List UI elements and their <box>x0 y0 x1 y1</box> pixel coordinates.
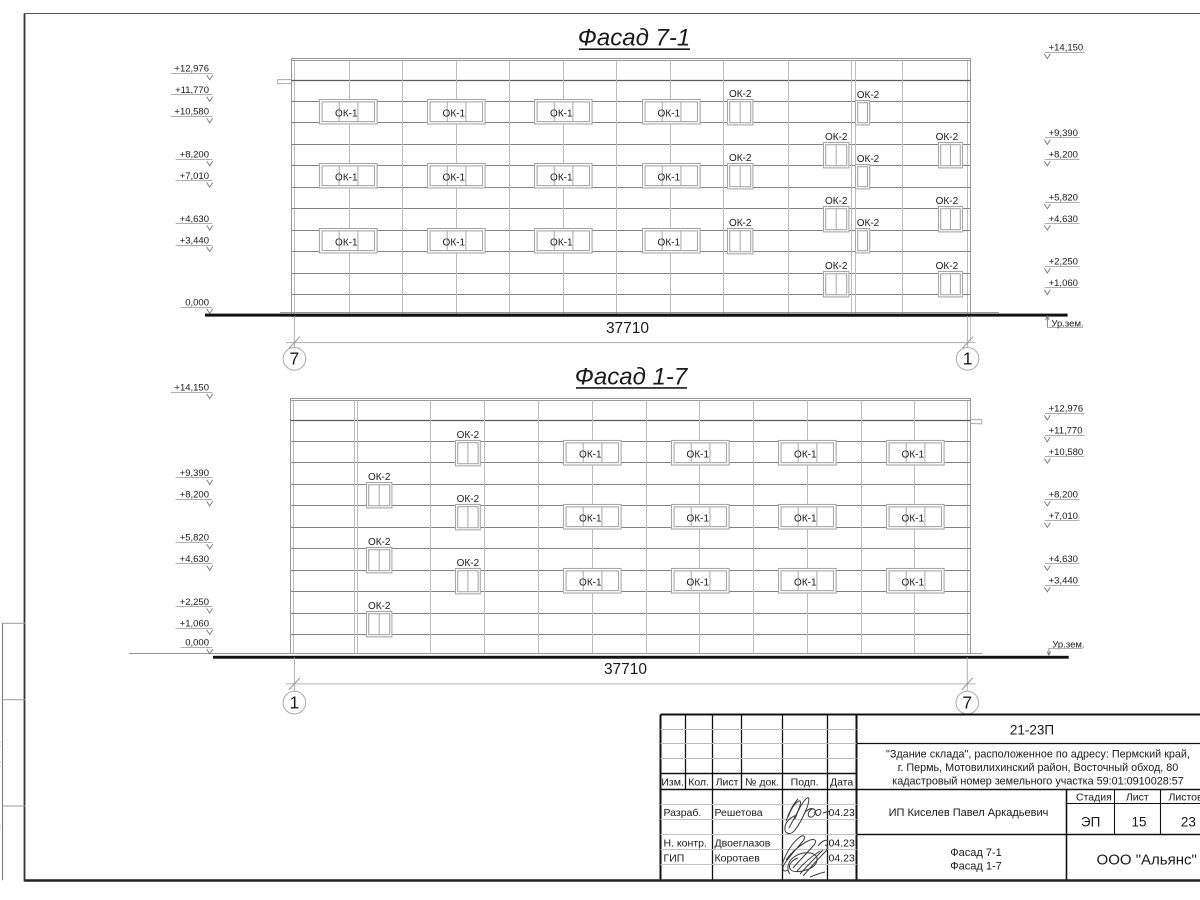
svg-text:Инв. № подл.: Инв. № подл. <box>0 818 1 868</box>
svg-text:+11,770: +11,770 <box>1049 425 1083 436</box>
svg-text:ОК-2: ОК-2 <box>936 261 959 272</box>
svg-text:+3,440: +3,440 <box>1049 576 1078 587</box>
svg-text:№ док.: № док. <box>745 776 779 788</box>
svg-text:04.23: 04.23 <box>829 837 855 849</box>
svg-text:+5,820: +5,820 <box>180 533 209 544</box>
svg-text:Н. контр.: Н. контр. <box>664 837 707 849</box>
svg-text:23: 23 <box>1181 814 1196 829</box>
svg-text:+8,200: +8,200 <box>1049 150 1078 161</box>
svg-text:ОК-1: ОК-1 <box>579 577 602 588</box>
svg-text:+3,440: +3,440 <box>180 235 209 246</box>
svg-text:1: 1 <box>963 349 973 369</box>
svg-text:ОК-2: ОК-2 <box>825 261 848 272</box>
svg-text:+14,150: +14,150 <box>174 382 209 393</box>
svg-text:ОК-1: ОК-1 <box>550 108 573 119</box>
svg-text:ОК-2: ОК-2 <box>936 132 959 143</box>
svg-text:Двоеглазов: Двоеглазов <box>715 837 771 849</box>
svg-text:ОК-2: ОК-2 <box>936 196 959 207</box>
svg-text:+5,820: +5,820 <box>1049 192 1078 203</box>
svg-text:ЭП: ЭП <box>1081 814 1100 829</box>
svg-text:7: 7 <box>290 349 300 369</box>
svg-text:ОК-1: ОК-1 <box>687 513 710 524</box>
svg-text:Ур.зем.: Ур.зем. <box>1051 319 1083 330</box>
svg-text:ОК-2: ОК-2 <box>729 89 752 100</box>
svg-text:Стадия: Стадия <box>1076 791 1112 803</box>
svg-text:ОК-2: ОК-2 <box>857 218 880 229</box>
svg-text:ОК-1: ОК-1 <box>687 449 710 460</box>
svg-text:+8,200: +8,200 <box>1049 490 1078 501</box>
svg-text:37710: 37710 <box>604 661 647 678</box>
svg-text:ОК-2: ОК-2 <box>457 558 480 569</box>
svg-text:Решетова: Решетова <box>715 807 763 819</box>
svg-text:Подп. и дата: Подп. и дата <box>0 729 1 777</box>
svg-text:ОК-1: ОК-1 <box>658 108 681 119</box>
svg-text:Фасад 7-1: Фасад 7-1 <box>578 25 690 52</box>
svg-text:Листов: Листов <box>1168 791 1200 803</box>
svg-text:7: 7 <box>962 692 972 712</box>
svg-text:21-23П: 21-23П <box>1010 722 1054 737</box>
svg-text:ОК-1: ОК-1 <box>579 513 602 524</box>
svg-text:ОК-2: ОК-2 <box>368 537 391 548</box>
svg-text:Фасад 1-7: Фасад 1-7 <box>950 860 1001 872</box>
svg-text:ООО "Альянс": ООО "Альянс" <box>1097 851 1197 868</box>
svg-text:Изм.: Изм. <box>661 776 684 788</box>
svg-text:Лист: Лист <box>716 776 739 788</box>
svg-text:Фасад 7-1: Фасад 7-1 <box>950 847 1001 859</box>
svg-text:Фасад 1-7: Фасад 1-7 <box>575 363 689 390</box>
svg-text:+1,060: +1,060 <box>180 618 209 629</box>
svg-text:ОК-1: ОК-1 <box>550 237 573 248</box>
svg-text:ГИП: ГИП <box>664 852 685 864</box>
svg-text:г. Пермь, Мотовилихинский райо: г. Пермь, Мотовилихинский район, Восточн… <box>898 762 1179 774</box>
svg-text:ОК-1: ОК-1 <box>902 577 925 588</box>
svg-text:ОК-1: ОК-1 <box>902 513 925 524</box>
svg-text:ОК-1: ОК-1 <box>658 237 681 248</box>
svg-text:Дата: Дата <box>830 776 853 788</box>
svg-text:ОК-1: ОК-1 <box>658 172 681 183</box>
svg-text:ОК-2: ОК-2 <box>457 494 480 505</box>
svg-text:04.23: 04.23 <box>829 807 855 819</box>
svg-text:ОК-1: ОК-1 <box>794 513 817 524</box>
svg-text:+8,200: +8,200 <box>180 150 209 161</box>
svg-text:Взам. инв. №: Взам. инв. № <box>0 636 1 686</box>
svg-text:ОК-2: ОК-2 <box>729 153 752 164</box>
svg-text:15: 15 <box>1131 814 1146 829</box>
svg-text:ОК-1: ОК-1 <box>794 577 817 588</box>
svg-text:ОК-2: ОК-2 <box>729 218 752 229</box>
svg-text:1: 1 <box>290 692 300 712</box>
svg-text:ОК-1: ОК-1 <box>687 577 710 588</box>
svg-text:ОК-1: ОК-1 <box>335 108 358 119</box>
svg-text:ОК-2: ОК-2 <box>368 472 391 483</box>
svg-text:ИП Киселев Павел Аркадьевич: ИП Киселев Павел Аркадьевич <box>889 807 1049 819</box>
svg-text:ОК-1: ОК-1 <box>794 449 817 460</box>
svg-text:ОК-1: ОК-1 <box>443 108 466 119</box>
svg-text:+10,580: +10,580 <box>174 107 209 118</box>
svg-text:ОК-1: ОК-1 <box>335 237 358 248</box>
svg-text:ОК-2: ОК-2 <box>825 132 848 143</box>
svg-text:37710: 37710 <box>606 320 649 337</box>
svg-text:ОК-2: ОК-2 <box>857 154 880 165</box>
svg-text:"Здание склада", расположенное: "Здание склада", расположенное по адресу… <box>886 749 1190 761</box>
svg-text:кадастровый номер земельного у: кадастровый номер земельного участка 59:… <box>892 775 1183 787</box>
svg-text:+8,200: +8,200 <box>180 490 209 501</box>
svg-text:+14,150: +14,150 <box>1049 42 1084 53</box>
svg-text:ОК-2: ОК-2 <box>857 90 880 101</box>
svg-text:ОК-2: ОК-2 <box>457 430 480 441</box>
svg-text:Подп.: Подп. <box>791 776 819 788</box>
svg-text:ОК-2: ОК-2 <box>825 196 848 207</box>
svg-text:ОК-1: ОК-1 <box>550 172 573 183</box>
svg-text:ОК-2: ОК-2 <box>368 601 391 612</box>
svg-text:+12,976: +12,976 <box>174 63 209 74</box>
svg-text:Кол.: Кол. <box>688 776 709 788</box>
svg-text:Коротаев: Коротаев <box>715 852 761 864</box>
svg-text:ОК-1: ОК-1 <box>335 172 358 183</box>
svg-text:Разраб.: Разраб. <box>664 807 702 819</box>
svg-text:0,000: 0,000 <box>185 297 209 308</box>
svg-text:ОК-1: ОК-1 <box>579 449 602 460</box>
svg-text:Лист: Лист <box>1126 791 1149 803</box>
svg-text:0,000: 0,000 <box>185 638 209 649</box>
svg-text:ОК-1: ОК-1 <box>902 449 925 460</box>
svg-text:ОК-1: ОК-1 <box>443 172 466 183</box>
svg-text:04.23: 04.23 <box>829 852 855 864</box>
svg-text:ОК-1: ОК-1 <box>443 237 466 248</box>
